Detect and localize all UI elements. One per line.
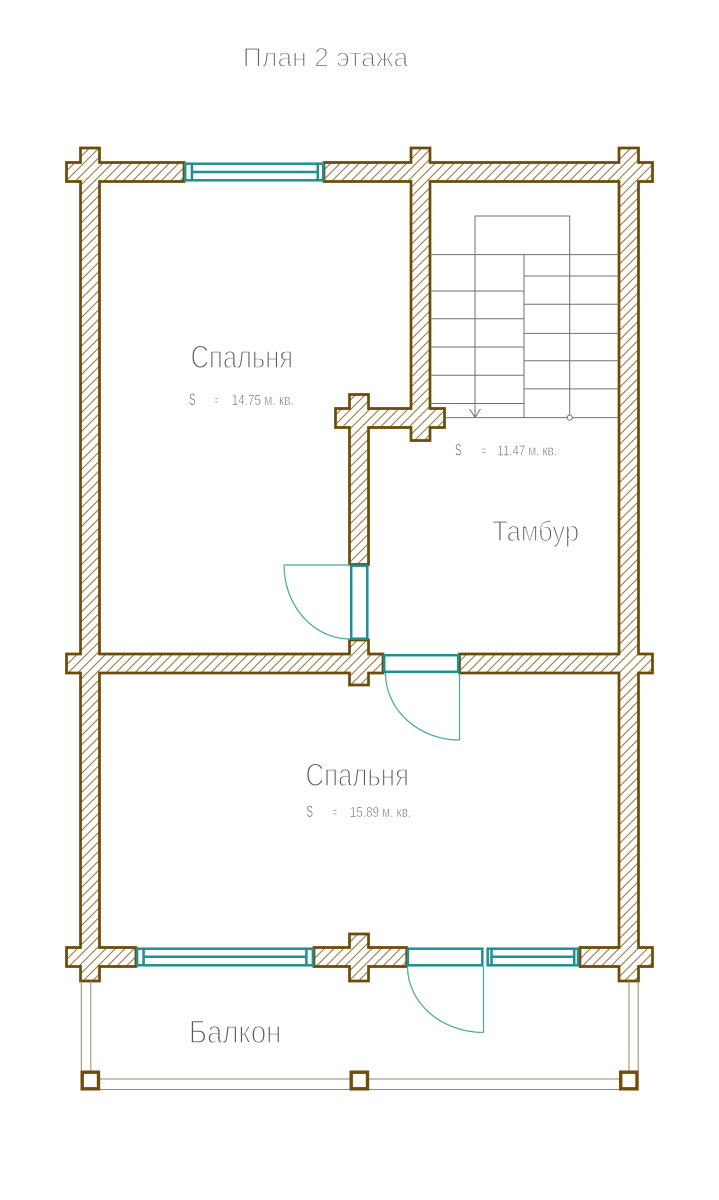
svg-text:Спальня: Спальня [306, 757, 409, 793]
svg-text:=: = [333, 804, 338, 820]
svg-text:S: S [307, 803, 314, 821]
svg-text:Спальня: Спальня [191, 339, 294, 375]
svg-text:Тамбур: Тамбур [492, 516, 579, 548]
svg-text:S: S [189, 391, 196, 409]
svg-text:S: S [455, 442, 462, 460]
svg-text:11.47 м. кв.: 11.47 м. кв. [497, 443, 557, 460]
svg-text:=: = [482, 443, 487, 459]
svg-text:=: = [214, 392, 219, 408]
svg-text:14.75 м. кв.: 14.75 м. кв. [232, 392, 294, 409]
svg-text:План 2 этажа: План 2 этажа [243, 43, 409, 73]
svg-text:Балкон: Балкон [189, 1014, 282, 1050]
svg-text:15.89 м. кв.: 15.89 м. кв. [350, 804, 411, 821]
